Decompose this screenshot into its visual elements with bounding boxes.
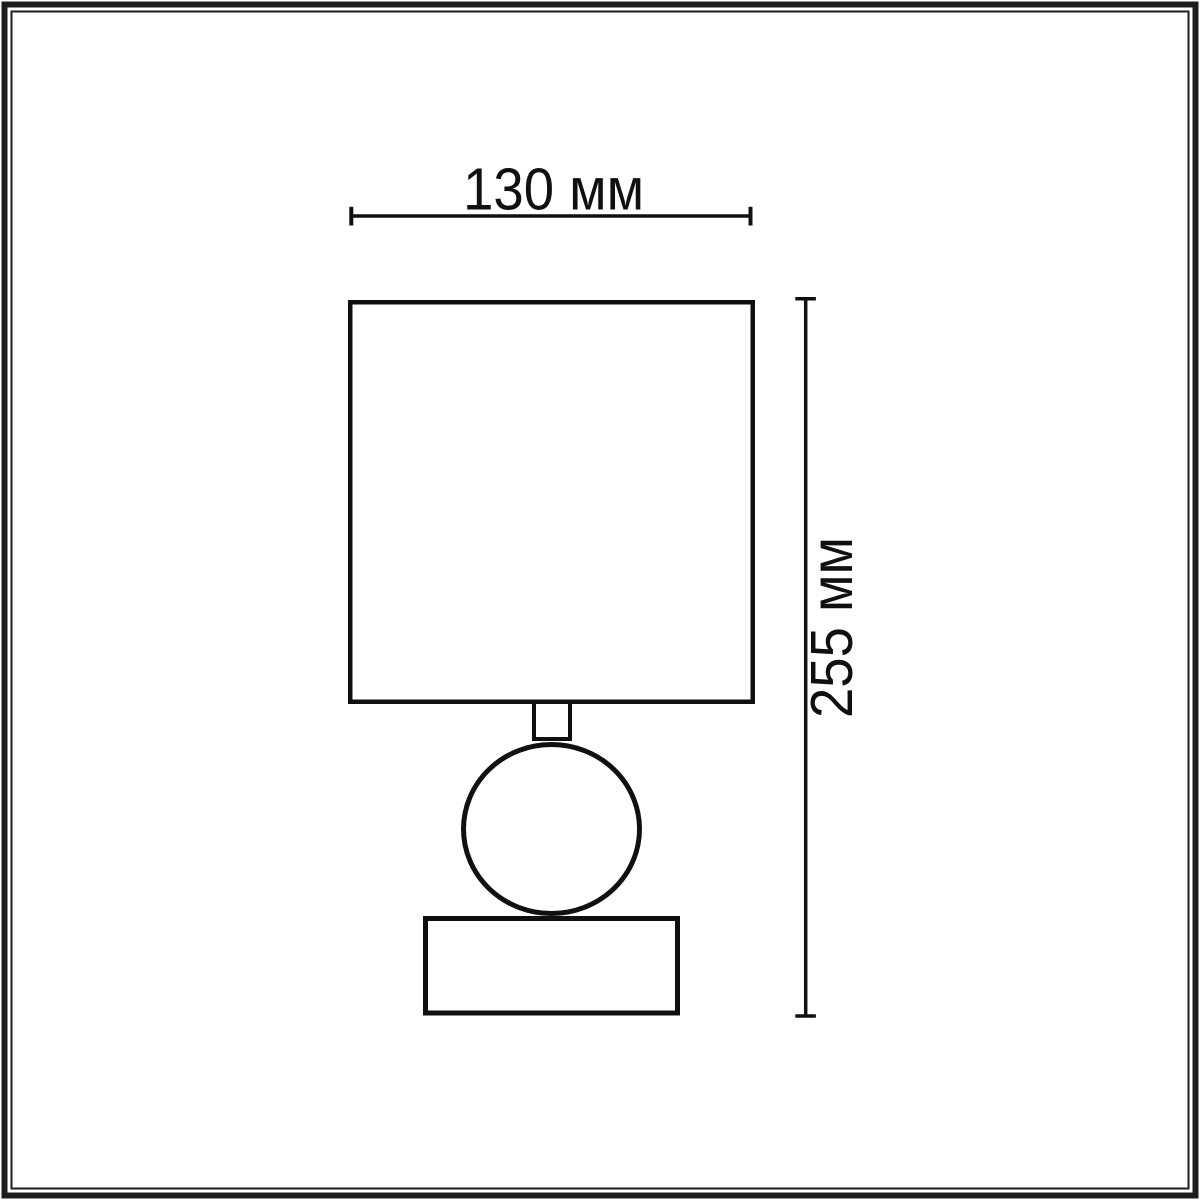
svg-text:130 мм: 130 мм xyxy=(463,157,644,223)
svg-text:255 мм: 255 мм xyxy=(799,537,865,718)
